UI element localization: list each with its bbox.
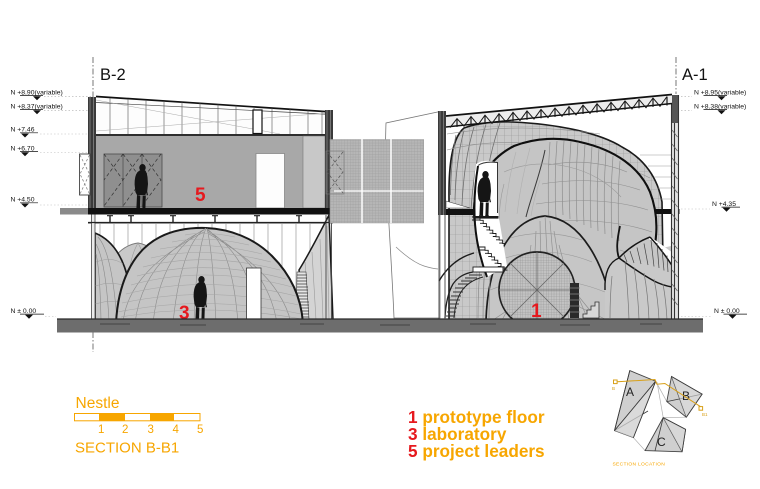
svg-text:SECTION LOCATION: SECTION LOCATION [613,462,666,468]
svg-text:3: 3 [148,424,154,436]
svg-text:4: 4 [173,424,180,436]
svg-text:B: B [612,386,615,391]
svg-text:C: C [657,435,666,449]
svg-text:Nestle: Nestle [76,395,120,412]
svg-text:5 project leaders: 5 project leaders [408,441,545,461]
svg-text:B1: B1 [702,412,708,417]
svg-text:SECTION B-B1: SECTION B-B1 [75,440,179,457]
svg-text:B-2: B-2 [100,66,126,84]
svg-text:A-1: A-1 [682,66,708,84]
svg-text:5: 5 [197,424,203,436]
svg-text:2: 2 [122,424,128,436]
svg-text:A: A [626,385,634,399]
svg-text:5: 5 [195,185,206,206]
svg-text:1: 1 [98,424,104,436]
